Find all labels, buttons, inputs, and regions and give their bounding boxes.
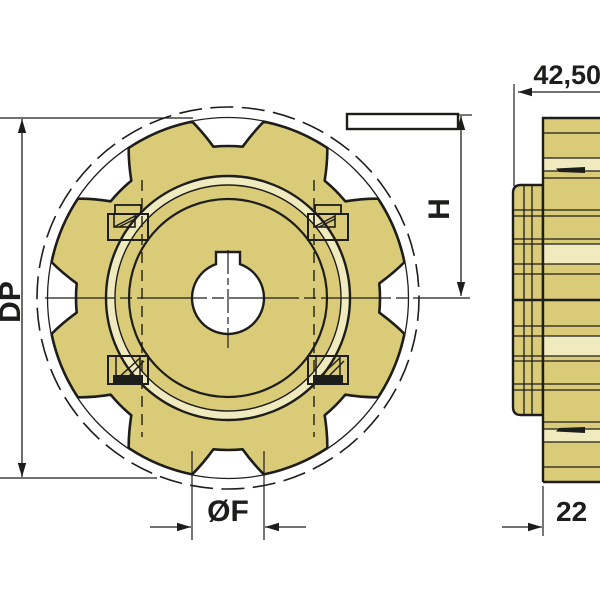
dp-label: DP — [0, 281, 27, 323]
side-view — [513, 118, 600, 482]
highlight-band — [543, 336, 600, 356]
h-label: H — [423, 198, 456, 220]
bore-label: ØF — [207, 495, 249, 528]
overall-width-label: 42,50 — [533, 60, 600, 90]
disc-width-label: 22 — [556, 496, 587, 527]
highlight-band — [543, 244, 600, 264]
drawing-svg: DP H ØF 42,50 22 — [0, 0, 600, 600]
front-view — [37, 107, 470, 489]
sprocket-engineering-drawing: DP H ØF 42,50 22 — [0, 0, 600, 600]
chain-plate-bar — [347, 114, 458, 129]
